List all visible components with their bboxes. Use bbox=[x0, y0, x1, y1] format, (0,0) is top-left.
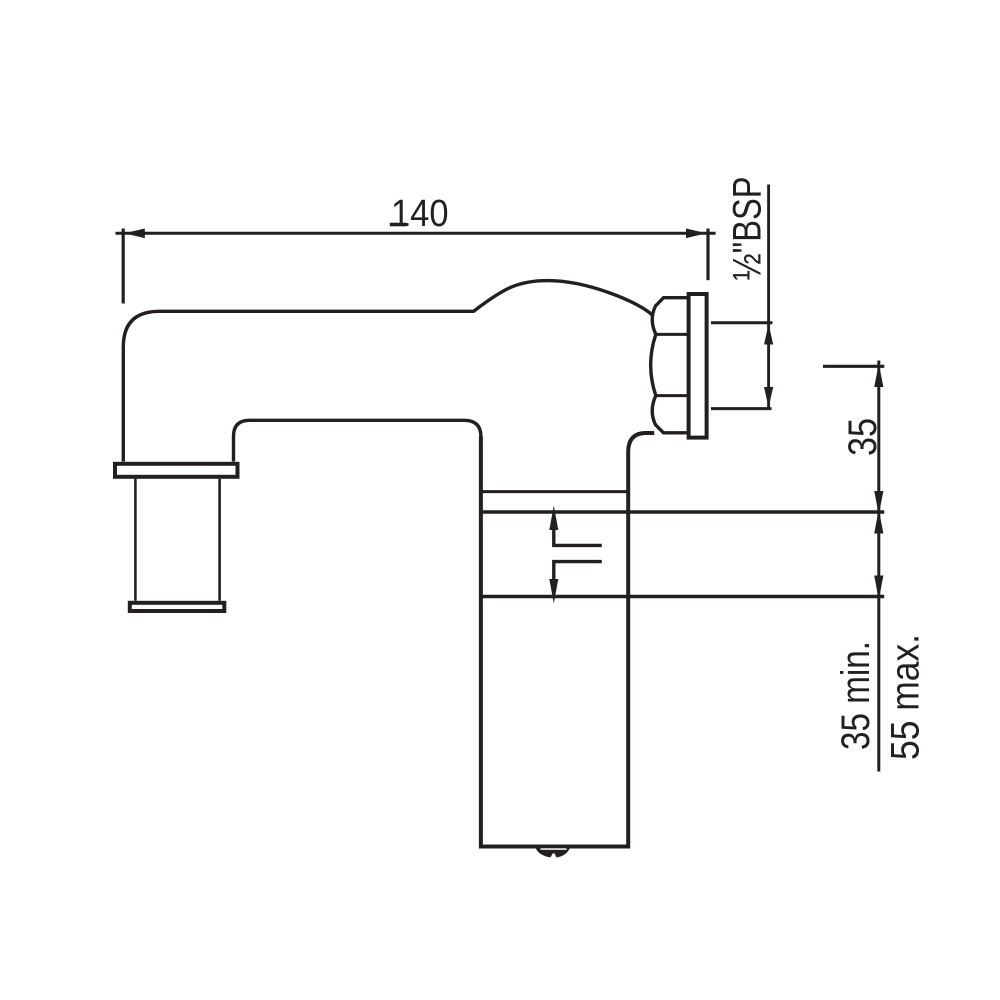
svg-text:55 max.: 55 max. bbox=[883, 634, 927, 760]
svg-text:35: 35 bbox=[841, 418, 885, 456]
svg-text:35 min.: 35 min. bbox=[834, 641, 878, 750]
svg-text:½"BSP: ½"BSP bbox=[725, 177, 769, 281]
svg-text:140: 140 bbox=[391, 193, 449, 235]
